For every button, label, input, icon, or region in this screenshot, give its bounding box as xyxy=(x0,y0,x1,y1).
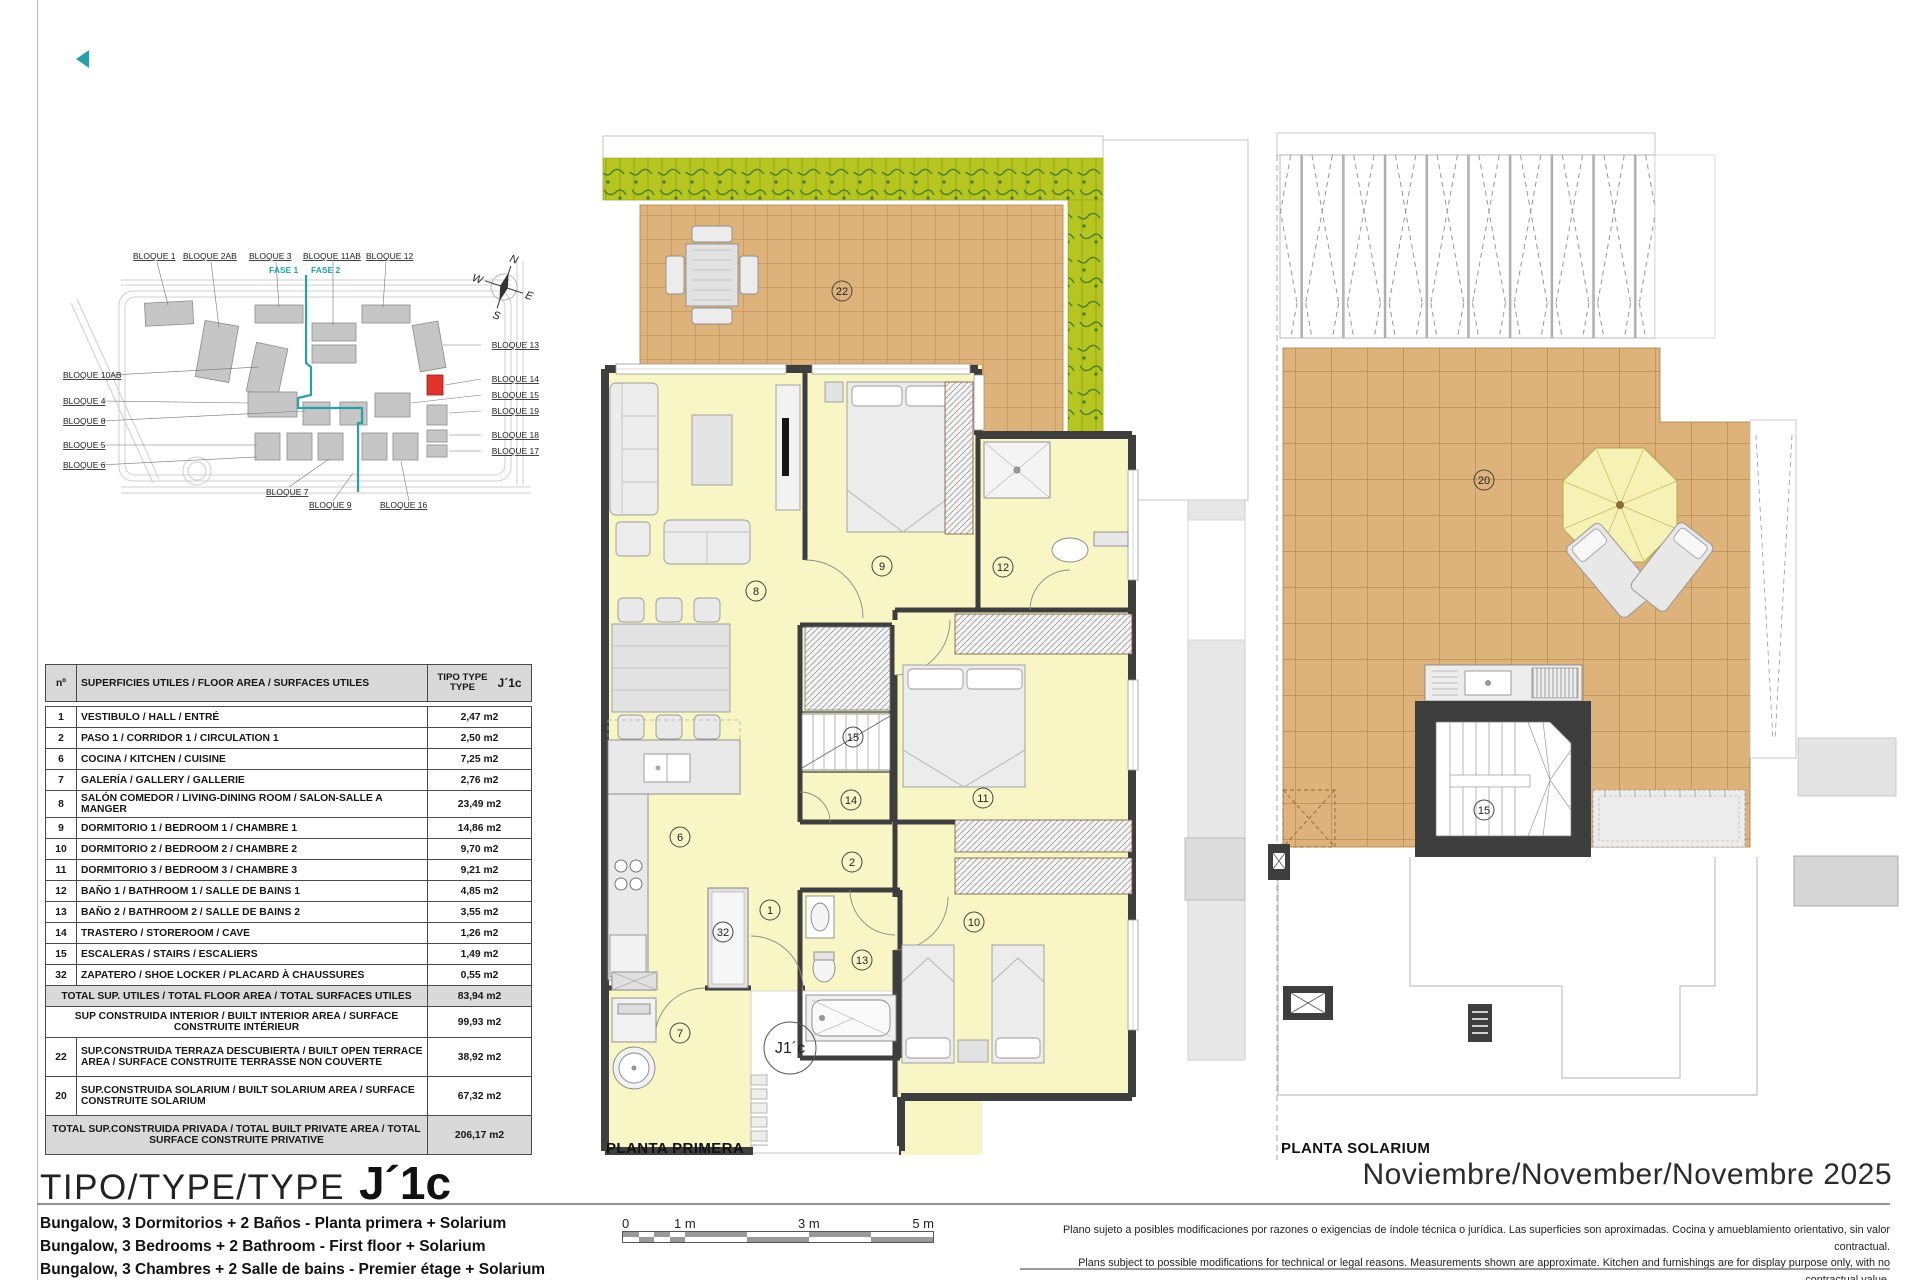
site-labels: BLOQUE 1 BLOQUE 2AB BLOQUE 3 BLOQUE 11AB… xyxy=(63,251,539,510)
table-row: 20SUP.CONSTRUIDA SOLARIUM / BUILT SOLARI… xyxy=(45,1077,532,1116)
site-label: BLOQUE 13 xyxy=(492,340,540,350)
scale-bar: 0 1 m 3 m 5 m xyxy=(622,1214,934,1243)
tv-unit xyxy=(776,385,800,510)
table-row: 11DORMITORIO 3 / BEDROOM 3 / CHAMBRE 39,… xyxy=(45,860,532,881)
type-label: TIPO/TYPE/TYPE xyxy=(40,1168,345,1207)
pergola-side xyxy=(1655,155,1715,338)
room-number: 32 xyxy=(717,927,729,939)
description-en: Bungalow, 3 Bedrooms + 2 Bathroom - Firs… xyxy=(40,1235,545,1258)
site-label: BLOQUE 19 xyxy=(492,406,540,416)
room-number: 1 xyxy=(767,905,773,917)
site-label: BLOQUE 4 xyxy=(63,396,106,406)
table-row: 22SUP.CONSTRUIDA TERRAZA DESCUBIERTA / B… xyxy=(45,1038,532,1077)
table-row: 12BAÑO 1 / BATHROOM 1 / SALLE DE BAINS 1… xyxy=(45,881,532,902)
table-row: SUP CONSTRUIDA INTERIOR / BUILT INTERIOR… xyxy=(45,1007,532,1038)
scale-5m: 5 m xyxy=(912,1216,934,1231)
hedge-top xyxy=(603,158,1103,200)
wardrobe xyxy=(955,614,1132,654)
phase-1-label: FASE 1 xyxy=(269,265,299,275)
scale-bar-graphic xyxy=(622,1231,934,1243)
site-label: BLOQUE 3 xyxy=(249,251,292,261)
room-number: 7 xyxy=(677,1028,683,1040)
room-number: 14 xyxy=(845,795,857,807)
pergola-slats xyxy=(1280,155,1655,338)
room-number: 15 xyxy=(1478,805,1490,817)
divider xyxy=(37,1203,1890,1205)
compass-s: S xyxy=(491,309,502,323)
room-number: 9 xyxy=(879,561,885,573)
stairs-upper-closet xyxy=(805,627,890,710)
compass-e: E xyxy=(524,289,535,303)
site-label: BLOQUE 2AB xyxy=(183,251,237,261)
date: Noviembre/November/Novembre 2025 xyxy=(1362,1158,1892,1192)
table-row: 8SALÓN COMEDOR / LIVING-DINING ROOM / SA… xyxy=(45,791,532,818)
room-number: 13 xyxy=(856,955,868,967)
first-floor-plan: 22 8 9 12 15 14 2 11 6 1 32 13 10 7 J1´c xyxy=(600,120,1260,1160)
room-number: 2 xyxy=(849,857,855,869)
col-desc: SUPERFICIES UTILES / FLOOR AREA / SURFAC… xyxy=(77,665,428,701)
site-label: BLOQUE 1 xyxy=(133,251,176,261)
site-label: BLOQUE 6 xyxy=(63,460,106,470)
wardrobe xyxy=(955,820,1132,852)
col-num: nº xyxy=(46,665,77,701)
site-label: BLOQUE 8 xyxy=(63,416,106,426)
table-row: 6COCINA / KITCHEN / CUISINE7,25 m2 xyxy=(45,749,532,770)
area-table: nº SUPERFICIES UTILES / FLOOR AREA / SUR… xyxy=(45,664,532,1155)
table-row: 1VESTIBULO / HALL / ENTRÉ2,47 m2 xyxy=(45,706,532,728)
scale-1m: 1 m xyxy=(674,1216,696,1231)
table-row: 13BAÑO 2 / BATHROOM 2 / SALLE DE BAINS 2… xyxy=(45,902,532,923)
compass-icon: N E S W xyxy=(461,245,541,331)
phase-2-label: FASE 2 xyxy=(311,265,341,275)
type-title: TIPO/TYPE/TYPEJ´1c xyxy=(40,1156,451,1210)
scale-0: 0 xyxy=(622,1216,629,1231)
col-type: TIPO TYPE TYPE J´1c xyxy=(428,671,531,696)
site-label: BLOQUE 16 xyxy=(380,500,428,510)
room-number: 6 xyxy=(677,832,683,844)
tipo-line1: TIPO TYPE xyxy=(437,672,487,683)
room-number: 10 xyxy=(968,917,980,929)
table-row: 32ZAPATERO / SHOE LOCKER / PLACARD À CHA… xyxy=(45,965,532,986)
site-label: BLOQUE 15 xyxy=(492,390,540,400)
site-label: BLOQUE 7 xyxy=(266,487,309,497)
plan-sheet: BLOQUE 1 BLOQUE 2AB BLOQUE 3 BLOQUE 11AB… xyxy=(0,0,1920,1280)
svg-text:J1´c: J1´c xyxy=(775,1040,805,1057)
disclaimer: Plano sujeto a posibles modificaciones p… xyxy=(1046,1222,1890,1280)
table-total-row: TOTAL SUP.CONSTRUIDA PRIVADA / TOTAL BUI… xyxy=(45,1116,532,1155)
type-code-big: J´1c xyxy=(359,1157,451,1209)
pergola-edge xyxy=(1277,133,1655,155)
room-number: 15 xyxy=(847,732,859,744)
room-number: 22 xyxy=(836,286,848,298)
site-buildings xyxy=(144,301,447,460)
site-label: BLOQUE 18 xyxy=(492,430,540,440)
tipo-line2: TYPE xyxy=(450,682,475,693)
side-deck xyxy=(1593,790,1745,847)
service-blocks xyxy=(1268,844,1492,1042)
description-es: Bungalow, 3 Dormitorios + 2 Baños - Plan… xyxy=(40,1212,545,1235)
site-label: BLOQUE 17 xyxy=(492,446,540,456)
table-row: 7GALERÍA / GALLERY / GALLERIE2,76 m2 xyxy=(45,770,532,791)
neighbour-block xyxy=(1185,838,1245,900)
room-number: 20 xyxy=(1478,475,1490,487)
scale-3m: 3 m xyxy=(798,1216,820,1231)
brand-logo-icon xyxy=(76,50,89,68)
site-highlight-block-14 xyxy=(427,375,443,395)
table-row: 14TRASTERO / STOREROOM / CAVE1,26 m2 xyxy=(45,923,532,944)
wardrobe xyxy=(955,858,1132,894)
site-label: BLOQUE 9 xyxy=(309,500,352,510)
solarium-plan: 20 15 xyxy=(1260,120,1900,1160)
porch-opening xyxy=(753,1146,899,1156)
bed-double-2 xyxy=(903,665,1025,787)
compass-n: N xyxy=(508,253,519,267)
neighbour-window xyxy=(1188,520,1245,640)
site-plan: BLOQUE 1 BLOQUE 2AB BLOQUE 3 BLOQUE 11AB… xyxy=(61,245,541,515)
description-fr: Bungalow, 3 Chambres + 2 Salle de bains … xyxy=(40,1258,545,1280)
lower-roof-outline xyxy=(1278,857,1757,1095)
wardrobe xyxy=(945,382,973,534)
stairwell xyxy=(1415,701,1591,857)
room-number: 12 xyxy=(997,562,1009,574)
outdoor-kitchen xyxy=(1425,665,1582,701)
description-lines: Bungalow, 3 Dormitorios + 2 Baños - Plan… xyxy=(40,1212,545,1280)
site-leader-lines xyxy=(99,262,481,501)
site-phase-labels: FASE 1 FASE 2 xyxy=(269,265,341,275)
table-row: 2PASO 1 / CORRIDOR 1 / CIRCULATION 12,50… xyxy=(45,728,532,749)
scale-labels: 0 1 m 3 m 5 m xyxy=(622,1214,934,1231)
area-table-header: nº SUPERFICIES UTILES / FLOOR AREA / SUR… xyxy=(45,664,532,702)
gallery-fixtures xyxy=(612,972,657,1089)
type-code: J´1c xyxy=(498,676,522,690)
table-total-row: TOTAL SUP. UTILES / TOTAL FLOOR AREA / T… xyxy=(45,986,532,1007)
site-label: BLOQUE 10AB xyxy=(63,370,122,380)
plan1-caption: PLANTA PRIMERA xyxy=(606,1140,744,1157)
table-row: 10DORMITORIO 2 / BEDROOM 2 / CHAMBRE 29,… xyxy=(45,839,532,860)
page-left-rule xyxy=(37,0,38,1280)
site-label: BLOQUE 11AB xyxy=(303,251,361,261)
room-number: 8 xyxy=(753,586,759,598)
disclaimer-es: Plano sujeto a posibles modificaciones p… xyxy=(1046,1222,1890,1255)
site-label: BLOQUE 5 xyxy=(63,440,106,450)
dining-set xyxy=(612,598,730,739)
room-number: 11 xyxy=(977,793,988,805)
site-label: BLOQUE 14 xyxy=(492,374,540,384)
table-row: 9DORMITORIO 1 / BEDROOM 1 / CHAMBRE 114,… xyxy=(45,818,532,839)
site-label: BLOQUE 12 xyxy=(366,251,414,261)
table-row: 15ESCALERAS / STAIRS / ESCALIERS1,49 m2 xyxy=(45,944,532,965)
divider-bottom xyxy=(1020,1268,1890,1270)
plan2-caption: PLANTA SOLARIUM xyxy=(1281,1140,1430,1157)
right-band xyxy=(1750,420,1898,906)
